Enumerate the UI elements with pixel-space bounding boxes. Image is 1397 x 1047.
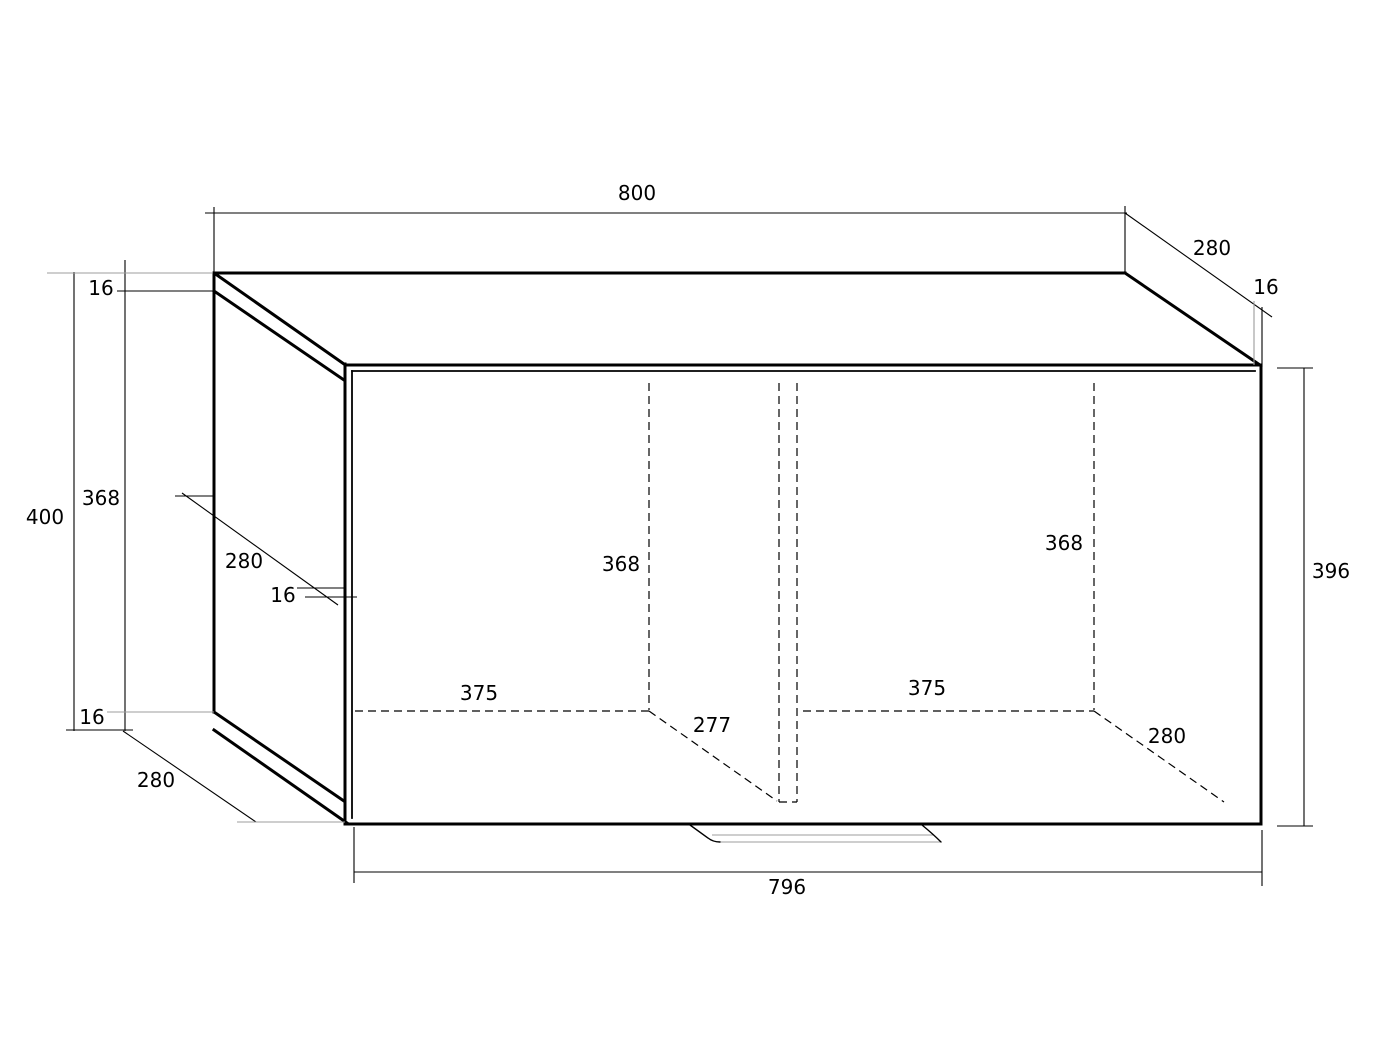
top-face-right-edge <box>1125 273 1260 365</box>
handle-right-end <box>922 825 941 842</box>
top-joint-left-edge <box>214 291 344 380</box>
dim-label-thickness-side-front: 16 <box>270 583 295 607</box>
dim-label-right-compartment-depth: 280 <box>1148 724 1186 748</box>
dim-label-overall-depth-top-right: 280 <box>1193 236 1231 260</box>
dim-label-thickness-bottom-left: 16 <box>79 705 104 729</box>
handle-left-end <box>690 825 720 842</box>
dim-label-left-compartment-depth: 277 <box>693 713 731 737</box>
dim-280-top-right-line <box>1125 213 1272 317</box>
technical-drawing: 8002801616400368280161628036837527736837… <box>0 0 1397 1047</box>
dim-label-left-compartment-width: 375 <box>460 681 498 705</box>
top-face-left-edge <box>214 273 344 364</box>
dim-label-left-compartment-height: 368 <box>602 552 640 576</box>
dim-label-overall-width: 800 <box>618 181 656 205</box>
dim-label-door-width: 796 <box>768 875 806 899</box>
dim-label-depth-bottom-left: 280 <box>137 768 175 792</box>
dim-label-overall-height: 400 <box>26 505 64 529</box>
dim-label-thickness-top-left: 16 <box>88 276 113 300</box>
dim-label-right-compartment-width: 375 <box>908 676 946 700</box>
bottom-panel-left-edge <box>214 730 347 823</box>
dim-label-side-panel-height: 368 <box>82 486 120 510</box>
dim-label-door-height: 396 <box>1312 559 1350 583</box>
drawing-page: 8002801616400368280161628036837527736837… <box>0 0 1397 1047</box>
dim-label-thickness-top-right: 16 <box>1253 275 1278 299</box>
dim-label-side-panel-depth: 280 <box>225 549 263 573</box>
dim-label-right-compartment-height: 368 <box>1045 531 1083 555</box>
side-panel-bottom-edge <box>214 712 344 801</box>
